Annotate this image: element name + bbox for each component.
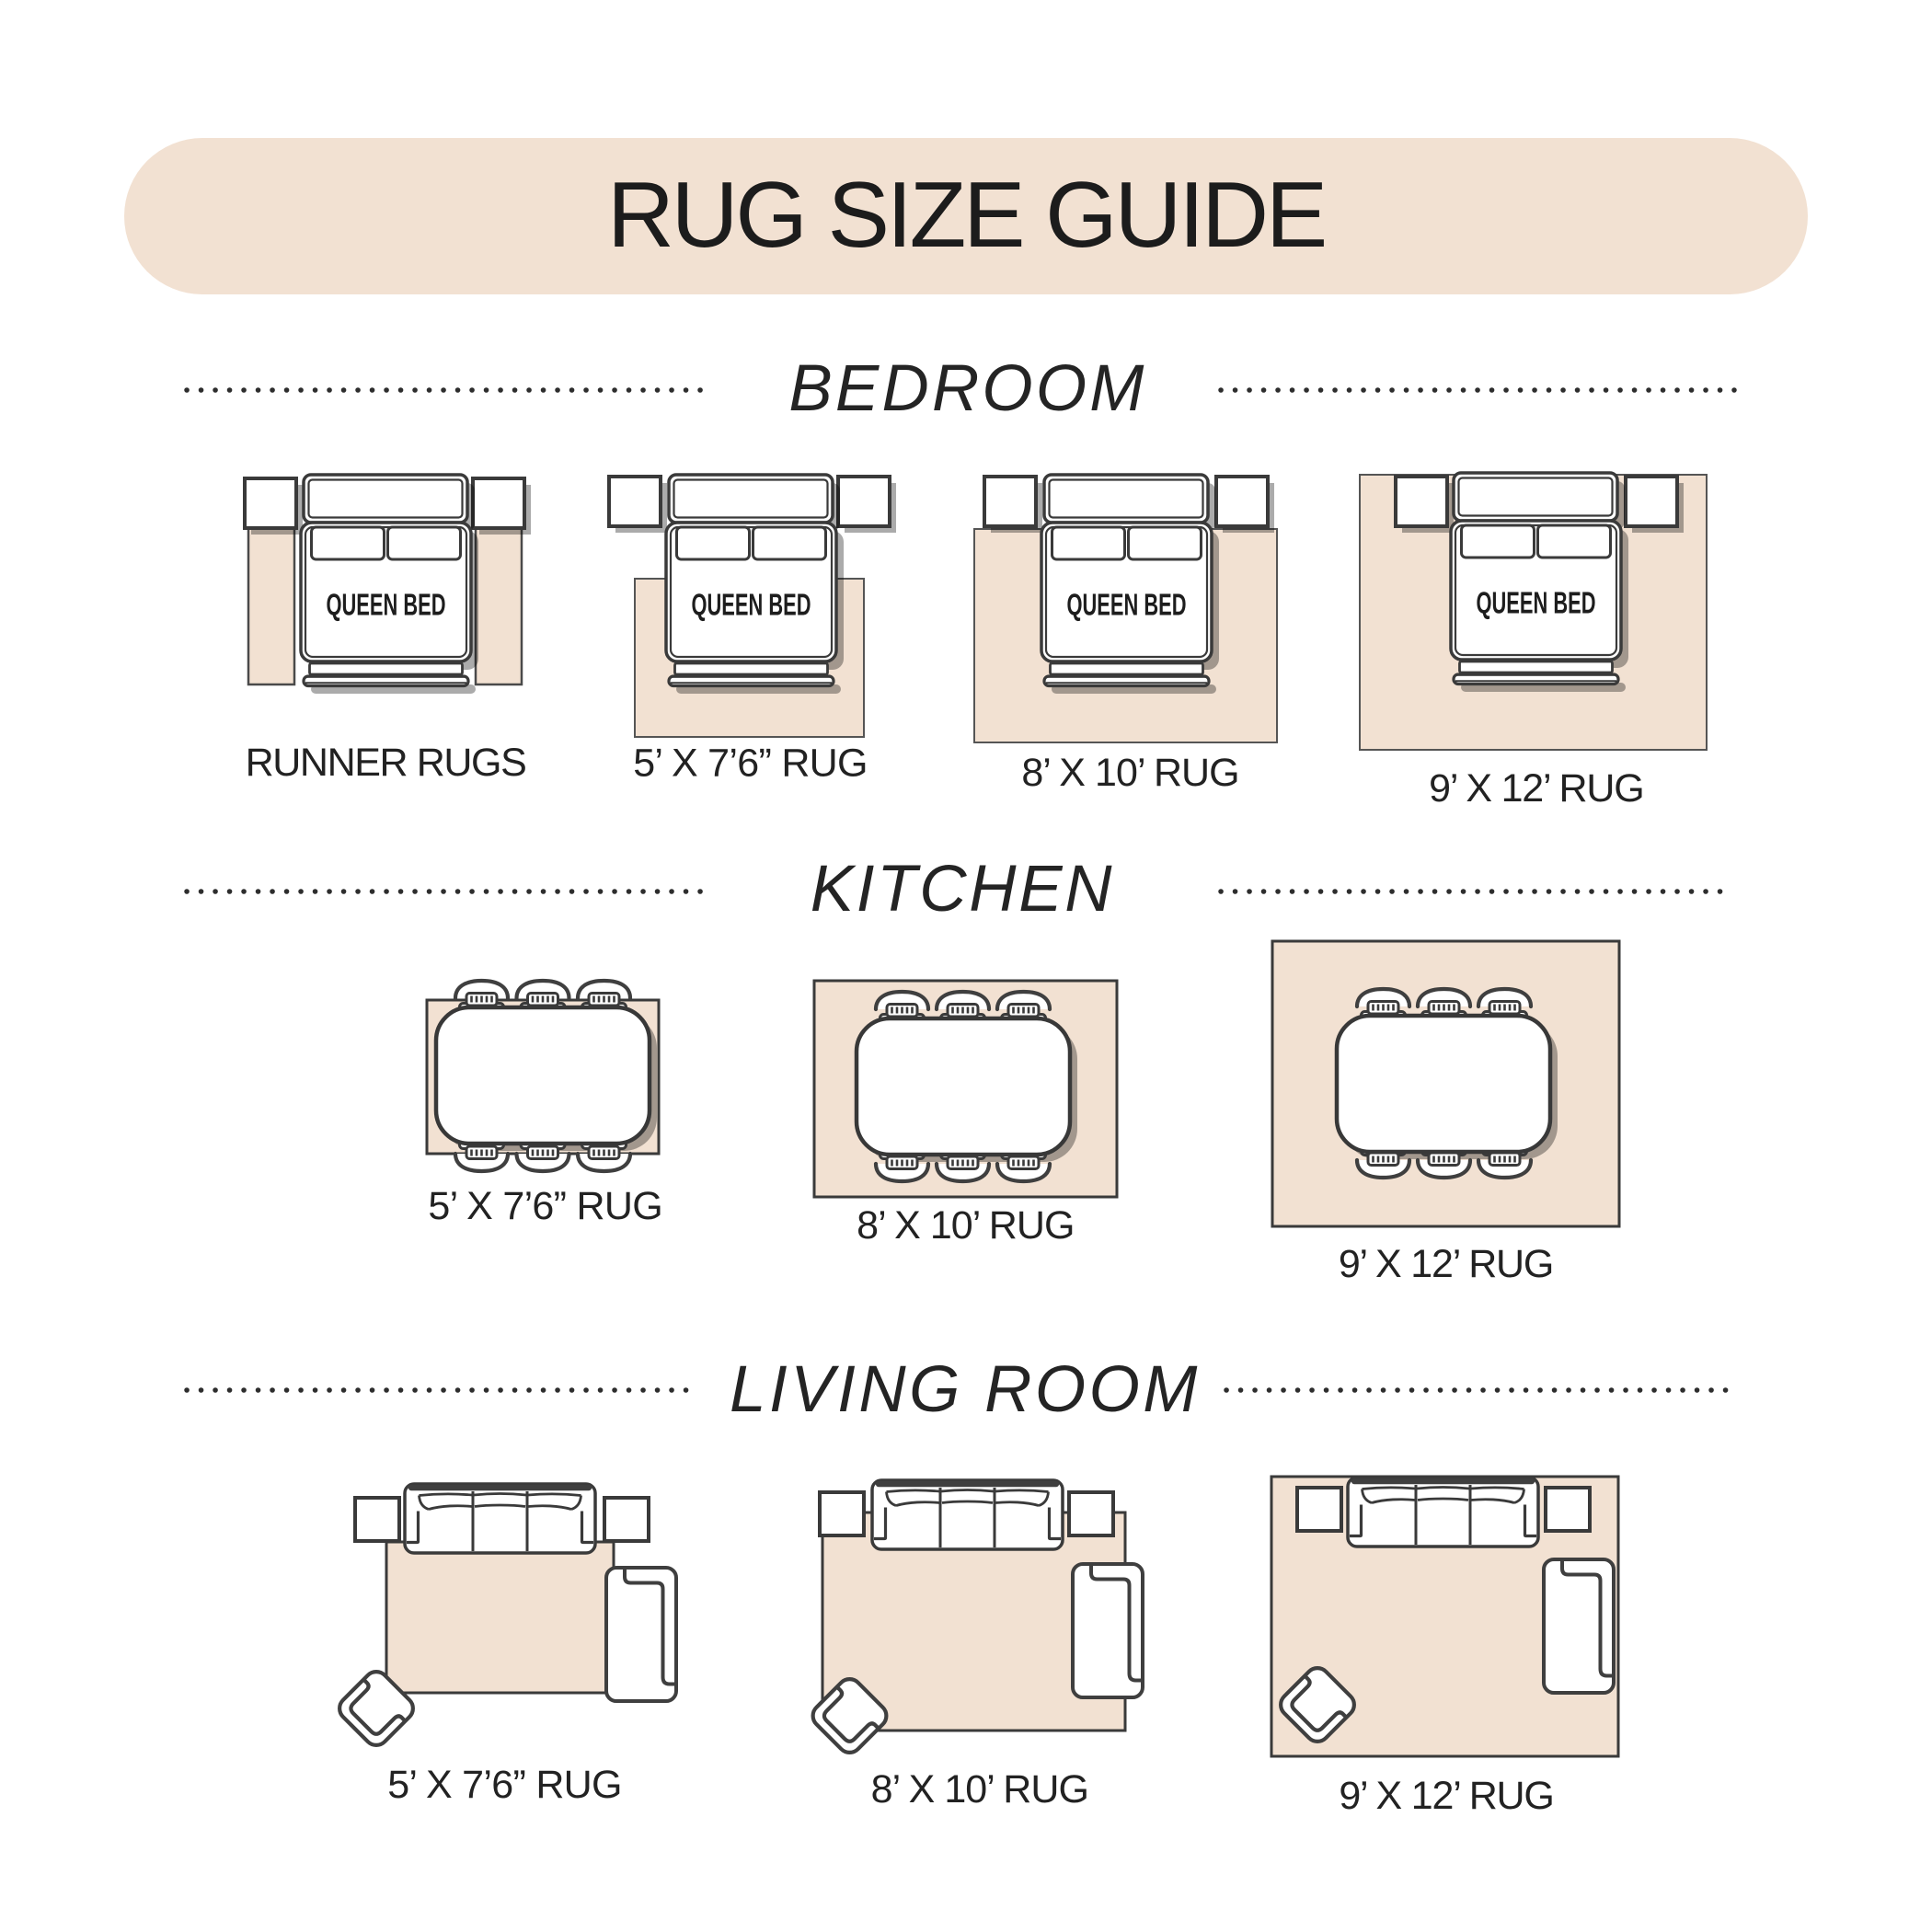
svg-text:8’ X 10’ RUG: 8’ X 10’ RUG <box>1021 751 1238 795</box>
svg-text:8’ X 10’ RUG: 8’ X 10’ RUG <box>871 1767 1088 1811</box>
svg-text:5’ X 7’6” RUG: 5’ X 7’6” RUG <box>387 1763 622 1807</box>
svg-text:LIVING ROOM: LIVING ROOM <box>730 1353 1201 1426</box>
svg-text:5’ X 7’6” RUG: 5’ X 7’6” RUG <box>428 1184 662 1228</box>
svg-text:8’ X 10’ RUG: 8’ X 10’ RUG <box>857 1203 1074 1248</box>
svg-text:BEDROOM: BEDROOM <box>788 352 1146 425</box>
svg-text:KITCHEN: KITCHEN <box>811 853 1115 926</box>
svg-text:5’ X 7’6” RUG: 5’ X 7’6” RUG <box>633 742 868 786</box>
svg-text:RUNNER RUGS: RUNNER RUGS <box>246 741 526 785</box>
svg-text:9’ X 12’ RUG: 9’ X 12’ RUG <box>1429 766 1643 811</box>
svg-text:9’ X 12’ RUG: 9’ X 12’ RUG <box>1339 1774 1553 1818</box>
svg-text:9’ X 12’ RUG: 9’ X 12’ RUG <box>1339 1242 1553 1286</box>
svg-text:RUG SIZE GUIDE: RUG SIZE GUIDE <box>607 164 1325 267</box>
